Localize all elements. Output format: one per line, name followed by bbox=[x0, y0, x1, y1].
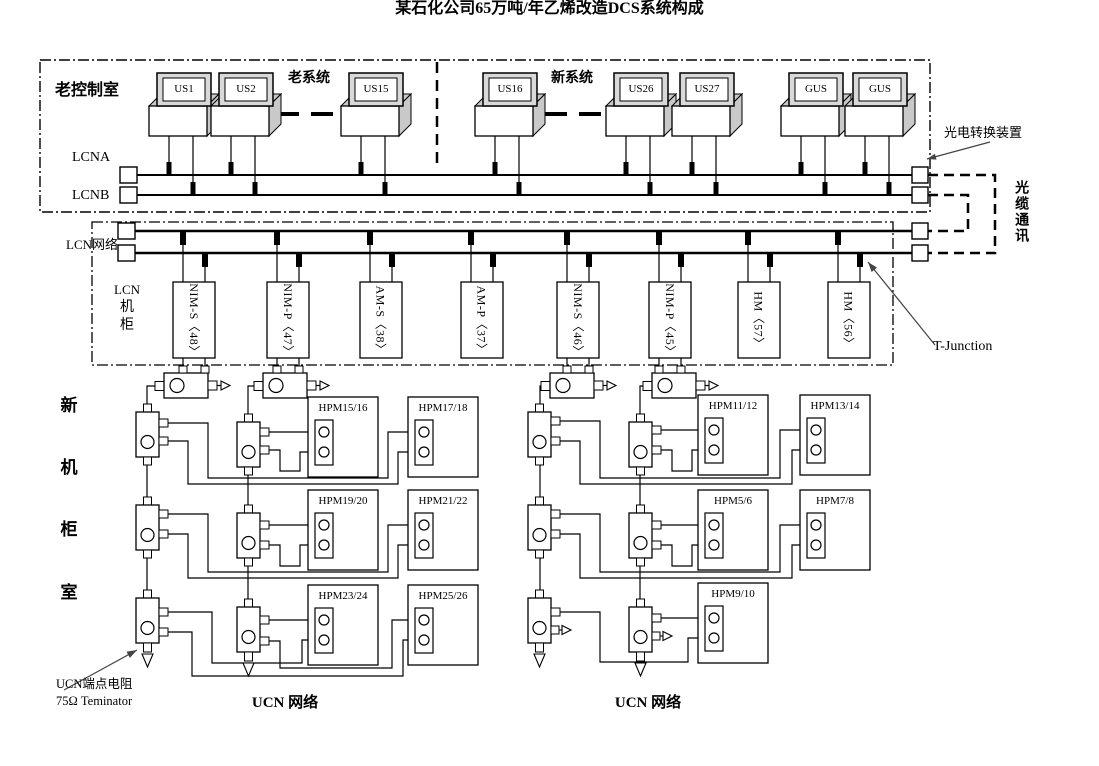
room-char-2: 机 bbox=[56, 458, 82, 478]
fiber-optic-links bbox=[928, 175, 995, 253]
hpm-label-15-16: HPM15/16 bbox=[308, 402, 378, 415]
ucn-tap-top-stubs bbox=[179, 366, 685, 373]
fiber-comm-label: 光缆通讯 bbox=[1012, 180, 1028, 244]
hpm-label-19-20: HPM19/20 bbox=[308, 495, 378, 508]
hpm-label-23-24: HPM23/24 bbox=[308, 590, 378, 603]
t-junction-arrow bbox=[868, 262, 935, 345]
hpm-label-25-26: HPM25/26 bbox=[408, 590, 478, 603]
dcs-architecture-diagram: 某石化公司65万吨/年乙烯改造DCS系统构成 老控制室 老系统 新系统 US1 … bbox=[0, 0, 1099, 766]
optical-converter-label: 光电转换装置 bbox=[944, 126, 1022, 141]
hpm-label-7-8: HPM7/8 bbox=[800, 495, 870, 508]
lcna-label: LCNA bbox=[72, 150, 110, 166]
room-char-1: 新 bbox=[56, 396, 82, 416]
terminator-label-cn: UCN端点电阻 bbox=[56, 677, 132, 691]
old-system-label: 老系统 bbox=[288, 71, 330, 87]
ucn-tap-h3 bbox=[541, 373, 616, 398]
room-char-3: 柜 bbox=[56, 520, 82, 540]
hpm-label-11-12: HPM11/12 bbox=[698, 400, 768, 413]
workstation-label-us27: US27 bbox=[686, 78, 728, 101]
lcn-network-label: LCN网络 bbox=[66, 238, 118, 253]
ucn-network-label-left: UCN 网络 bbox=[240, 695, 330, 712]
old-control-room-label: 老控制室 bbox=[55, 82, 119, 100]
ucn-network-label-right: UCN 网络 bbox=[603, 695, 693, 712]
module-label-hm57: HM〈57〉 bbox=[738, 282, 780, 358]
new-system-label: 新系统 bbox=[551, 71, 593, 87]
lcnb-label: LCNB bbox=[72, 188, 109, 204]
lcn-cabinet-label-1: LCN bbox=[104, 283, 150, 298]
hpm-label-13-14: HPM13/14 bbox=[800, 400, 870, 413]
workstation-label-us15: US15 bbox=[355, 78, 397, 101]
hpm-label-17-18: HPM17/18 bbox=[408, 402, 478, 415]
hpm-label-5-6: HPM5/6 bbox=[698, 495, 768, 508]
t-junction-label: T-Junction bbox=[933, 339, 992, 355]
room-char-4: 室 bbox=[56, 583, 82, 603]
ucn-tap-h1 bbox=[155, 373, 230, 398]
module-label-nim-p45: NIM-P〈45〉 bbox=[649, 282, 691, 358]
ucn-chain-b bbox=[237, 414, 269, 676]
ucn-tap-h4 bbox=[643, 373, 718, 398]
ucn-chain-a bbox=[136, 404, 168, 667]
lcn-cabinet-label-3: 柜 bbox=[104, 318, 150, 334]
module-label-hm56: HM〈56〉 bbox=[828, 282, 870, 358]
ucn-chain-c bbox=[528, 404, 571, 667]
module-label-am-s38: AM-S〈38〉 bbox=[360, 282, 402, 358]
hpm-label-21-22: HPM21/22 bbox=[408, 495, 478, 508]
terminator-label-en: 75Ω Teminator bbox=[56, 694, 132, 708]
lcn-buses bbox=[118, 223, 928, 261]
module-label-nim-s48: NIM-S〈48〉 bbox=[173, 282, 215, 358]
workstation-label-us2: US2 bbox=[225, 78, 267, 101]
module-label-nim-p47: NIM-P〈47〉 bbox=[267, 282, 309, 358]
ucn-tap-h2 bbox=[254, 373, 329, 398]
diagram-title: 某石化公司65万吨/年乙烯改造DCS系统构成 bbox=[0, 0, 1099, 18]
converter-arrow bbox=[927, 142, 990, 160]
hpm-label-9-10: HPM9/10 bbox=[698, 588, 768, 601]
workstation-label-us26: US26 bbox=[620, 78, 662, 101]
diagram-lines-layer bbox=[0, 0, 1099, 766]
lcn-cabinet-label-2: 机 bbox=[104, 300, 150, 316]
lcna-lcnb-buses bbox=[120, 167, 928, 203]
workstation-label-gus2: GUS bbox=[859, 78, 901, 101]
workstation-label-us1: US1 bbox=[163, 78, 205, 101]
workstation-label-us16: US16 bbox=[489, 78, 531, 101]
module-label-am-p37: AM-P〈37〉 bbox=[461, 282, 503, 358]
workstation-label-gus1: GUS bbox=[795, 78, 837, 101]
module-label-nim-s46: NIM-S〈46〉 bbox=[557, 282, 599, 358]
